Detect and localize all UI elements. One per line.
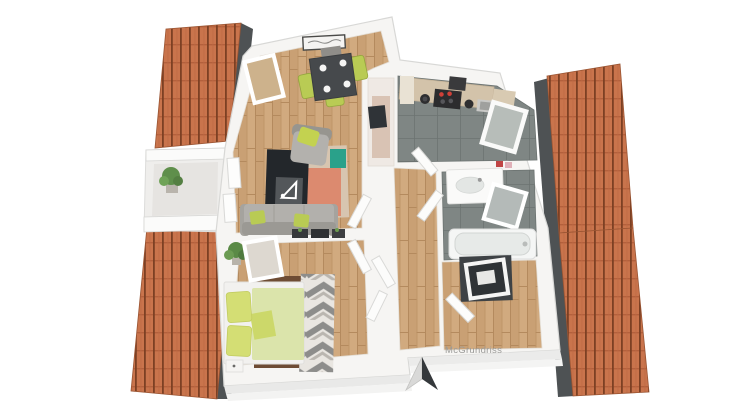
floor-plan-canvas: McGrundriss [0, 0, 747, 420]
roof-bottom-right [559, 228, 649, 396]
plate [320, 65, 327, 72]
pillow [226, 325, 252, 356]
kitchen-unit [400, 76, 414, 104]
armchair [288, 123, 333, 166]
balcony-railing [146, 148, 226, 161]
chevron-rug [299, 274, 335, 373]
balcony-railing [144, 215, 224, 232]
range-hood [448, 76, 466, 91]
plate [344, 81, 351, 88]
tv-lowboard-logo [276, 178, 303, 205]
throw-blanket [250, 310, 276, 339]
balcony [144, 148, 226, 232]
bathtub [449, 229, 536, 259]
wall-shelf [292, 228, 345, 238]
bath-accessory [505, 162, 512, 168]
double-bed [224, 282, 304, 364]
skylight-window [244, 238, 282, 281]
floor-plan-image: McGrundriss [0, 0, 747, 420]
cooktop [433, 89, 462, 110]
plate [340, 60, 347, 67]
plate [324, 86, 331, 93]
balcony-door [223, 194, 237, 223]
tablet [368, 105, 387, 129]
balcony-door [227, 158, 241, 189]
mirror-skylight [484, 184, 527, 228]
hall-cabinet [368, 78, 394, 166]
roof-top-right [547, 64, 633, 233]
watermark-text: McGrundriss [445, 345, 502, 356]
pillow [226, 291, 252, 323]
storage-room [459, 255, 513, 302]
sofa-pillow [293, 213, 309, 227]
area-rug-teal-patch [330, 149, 346, 168]
pot [465, 100, 474, 109]
bath-accessory [496, 161, 503, 167]
dining-table [309, 53, 356, 100]
sofa-pillow [249, 210, 266, 225]
